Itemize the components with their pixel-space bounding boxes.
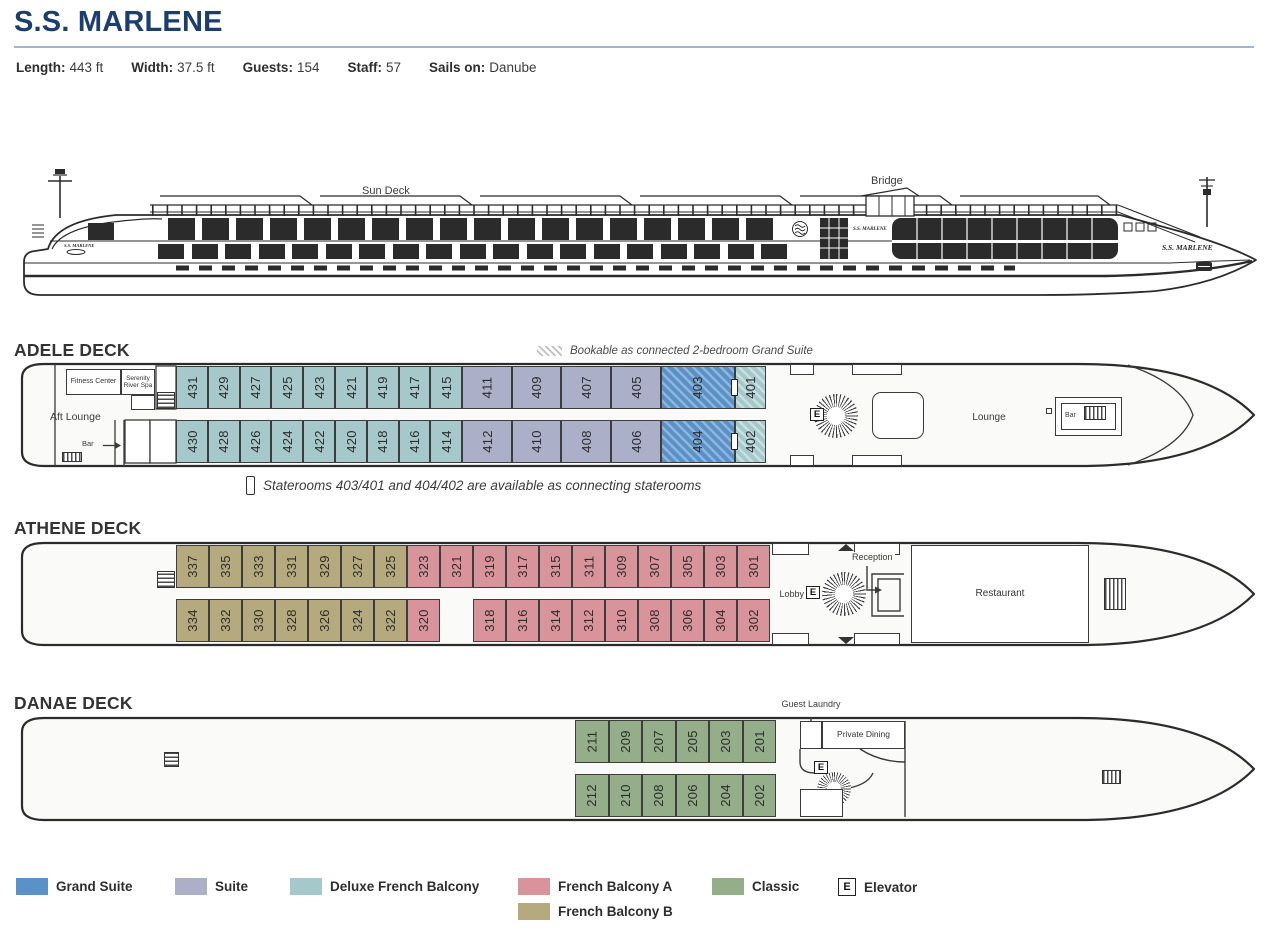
spiral-stairs-icon — [822, 572, 866, 616]
stateroom-327[interactable]: 327 — [341, 545, 374, 588]
stateroom-320[interactable]: 320 — [407, 599, 440, 642]
stateroom-430[interactable]: 430 — [176, 420, 208, 463]
stateroom-210[interactable]: 210 — [609, 774, 643, 817]
stateroom-329[interactable]: 329 — [308, 545, 341, 588]
legend-swatch-french-balcony-b — [518, 903, 550, 920]
stateroom-328[interactable]: 328 — [275, 599, 308, 642]
hatch-note: Bookable as connected 2-bedroom Grand Su… — [537, 345, 813, 357]
forward-window-band — [892, 218, 1118, 259]
page-title: S.S. MARLENE — [14, 6, 223, 39]
pillar — [1046, 408, 1052, 414]
wall-opening — [772, 633, 809, 645]
stateroom-324[interactable]: 324 — [341, 599, 374, 642]
deck-heading-adele: ADELE DECK — [14, 340, 130, 361]
stateroom-209[interactable]: 209 — [609, 720, 643, 763]
connecting-staterooms-note: Staterooms 403/401 and 404/402 are avail… — [246, 476, 701, 495]
ship-name-mid: S.S. MARLENE — [853, 227, 887, 232]
stateroom-307[interactable]: 307 — [638, 545, 671, 588]
stateroom-405[interactable]: 405 — [611, 366, 661, 409]
stateroom-333[interactable]: 333 — [242, 545, 275, 588]
stateroom-211[interactable]: 211 — [575, 720, 609, 763]
stateroom-207[interactable]: 207 — [642, 720, 676, 763]
stateroom-427[interactable]: 427 — [240, 366, 272, 409]
stateroom-301[interactable]: 301 — [737, 545, 770, 588]
stateroom-205[interactable]: 205 — [676, 720, 710, 763]
stateroom-416[interactable]: 416 — [399, 420, 431, 463]
wall-opening — [854, 633, 900, 645]
stateroom-411[interactable]: 411 — [462, 366, 512, 409]
elevator-symbol: E — [814, 761, 828, 774]
stateroom-312[interactable]: 312 — [572, 599, 605, 642]
stateroom-321[interactable]: 321 — [440, 545, 473, 588]
stateroom-310[interactable]: 310 — [605, 599, 638, 642]
bar-stairs-icon — [1084, 406, 1106, 420]
stateroom-408[interactable]: 408 — [561, 420, 611, 463]
stateroom-419[interactable]: 419 — [367, 366, 399, 409]
stateroom-428[interactable]: 428 — [208, 420, 240, 463]
stateroom-424[interactable]: 424 — [271, 420, 303, 463]
stateroom-332[interactable]: 332 — [209, 599, 242, 642]
stateroom-431[interactable]: 431 — [176, 366, 208, 409]
bridge-structure — [861, 188, 919, 216]
stateroom-206[interactable]: 206 — [676, 774, 710, 817]
aft-lower-stairs-icon — [62, 452, 82, 462]
stateroom-308[interactable]: 308 — [638, 599, 671, 642]
deck-plan-page: S.S. MARLENE Length:443 ft Width:37.5 ft… — [0, 0, 1268, 942]
forward-bar-label: Bar — [1065, 412, 1076, 419]
stateroom-319[interactable]: 319 — [473, 545, 506, 588]
restaurant-room: Restaurant — [911, 545, 1089, 643]
stateroom-412[interactable]: 412 — [462, 420, 512, 463]
stateroom-305[interactable]: 305 — [671, 545, 704, 588]
aft-lounge-label: Aft Lounge — [50, 411, 101, 423]
legend-swatch-deluxe-french-balcony — [290, 878, 322, 895]
stateroom-302[interactable]: 302 — [737, 599, 770, 642]
stateroom-330[interactable]: 330 — [242, 599, 275, 642]
stateroom-317[interactable]: 317 — [506, 545, 539, 588]
spa-annex-room — [131, 395, 155, 410]
stateroom-418[interactable]: 418 — [367, 420, 399, 463]
stair-room — [872, 392, 924, 439]
aft-stairs-icon — [157, 571, 175, 588]
deck-heading-athene: ATHENE DECK — [14, 518, 141, 539]
legend-item-suite: Suite — [175, 878, 248, 895]
stateroom-212[interactable]: 212 — [575, 774, 609, 817]
stateroom-309[interactable]: 309 — [605, 545, 638, 588]
stateroom-426[interactable]: 426 — [240, 420, 272, 463]
legend-item-french-balcony-a: French Balcony A — [518, 878, 672, 895]
legend-swatch-grand-suite — [16, 878, 48, 895]
stateroom-315[interactable]: 315 — [539, 545, 572, 588]
stern-window — [88, 223, 114, 240]
lobby-label: Lobby — [760, 589, 804, 599]
danae-rooms-bottom: 212210208206204202 — [14, 774, 1256, 817]
stateroom-326[interactable]: 326 — [308, 599, 341, 642]
connecting-door-symbol — [731, 433, 738, 450]
bow-mast — [1199, 177, 1215, 227]
stateroom-322[interactable]: 322 — [374, 599, 407, 642]
ship-name-bow: S.S. MARLENE — [1162, 243, 1213, 252]
stateroom-410[interactable]: 410 — [512, 420, 562, 463]
stateroom-314[interactable]: 314 — [539, 599, 572, 642]
deck-plan-adele: 4314294274254234214194174154114094074054… — [14, 362, 1256, 468]
stat-guests: Guests:154 — [243, 60, 320, 75]
private-dining-room: Private Dining — [822, 721, 905, 749]
deck-plan-athene: 3373353333313293273253233213193173153113… — [14, 541, 1256, 647]
stateroom-429[interactable]: 429 — [208, 366, 240, 409]
stateroom-420[interactable]: 420 — [335, 420, 367, 463]
guest-laundry-label: Guest Laundry — [754, 699, 868, 709]
stateroom-202[interactable]: 202 — [743, 774, 777, 817]
stateroom-404[interactable]: 404 — [661, 420, 735, 463]
legend-swatch-classic — [712, 878, 744, 895]
stateroom-423[interactable]: 423 — [303, 366, 335, 409]
connecting-door-glyph — [246, 476, 255, 495]
connecting-door-symbol — [731, 379, 738, 396]
deck-heading-danae: DANAE DECK — [14, 693, 133, 714]
legend-item-classic: Classic — [712, 878, 799, 895]
hatch-swatch — [537, 346, 562, 356]
stern-mast — [48, 169, 72, 218]
bow-stairs-icon — [1102, 770, 1121, 784]
sun-deck-label: Sun Deck — [362, 185, 410, 197]
serenity-river-spa-room: Serenity River Spa — [121, 369, 155, 395]
aft-stairs-icon — [157, 392, 175, 409]
stateroom-316[interactable]: 316 — [506, 599, 539, 642]
wall-opening — [790, 364, 814, 375]
stateroom-204[interactable]: 204 — [709, 774, 743, 817]
stateroom-414[interactable]: 414 — [430, 420, 462, 463]
aft-bar-label: Bar — [82, 439, 94, 448]
stat-staff: Staff:57 — [347, 60, 401, 75]
bow-stairs-icon — [1104, 578, 1126, 610]
sun-deck-railing — [150, 196, 1118, 212]
ship-name-stern: S.S. MARLENE — [64, 243, 94, 248]
stateroom-421[interactable]: 421 — [335, 366, 367, 409]
aft-stairs-icon — [164, 752, 179, 767]
stat-length: Length:443 ft — [16, 60, 103, 75]
stateroom-403[interactable]: 403 — [661, 366, 735, 409]
elevator-symbol: E — [810, 408, 824, 421]
stateroom-306[interactable]: 306 — [671, 599, 704, 642]
stateroom-407[interactable]: 407 — [561, 366, 611, 409]
wall-opening — [790, 455, 814, 466]
stateroom-417[interactable]: 417 — [399, 366, 431, 409]
legend-swatch-suite — [175, 878, 207, 895]
reception-label: Reception — [850, 552, 895, 562]
ship-profile-drawing: S.S. MARLENE — [10, 163, 1258, 305]
bow-emblem — [1196, 262, 1212, 271]
stateroom-415[interactable]: 415 — [430, 366, 462, 409]
mid-stair-block — [820, 218, 848, 259]
lounge-label: Lounge — [949, 412, 1029, 423]
stateroom-303[interactable]: 303 — [704, 545, 737, 588]
stateroom-422[interactable]: 422 — [303, 420, 335, 463]
stateroom-311[interactable]: 311 — [572, 545, 605, 588]
stateroom-325[interactable]: 325 — [374, 545, 407, 588]
stateroom-323[interactable]: 323 — [407, 545, 440, 588]
stateroom-425[interactable]: 425 — [271, 366, 303, 409]
legend-elevator-symbol: E — [838, 878, 856, 896]
stat-width: Width:37.5 ft — [131, 60, 214, 75]
legend-item-elevator: E Elevator — [838, 878, 917, 896]
wall-opening — [772, 543, 809, 555]
stateroom-402[interactable]: 402 — [735, 420, 766, 463]
wall-opening — [852, 364, 902, 375]
guest-laundry-room — [800, 721, 822, 749]
legend-item-grand-suite: Grand Suite — [16, 878, 133, 895]
stat-sails-on: Sails on:Danube — [429, 60, 537, 75]
fitness-center-room: Fitness Center — [66, 369, 121, 395]
legend-item-deluxe-french-balcony: Deluxe French Balcony — [290, 878, 479, 895]
stateroom-331[interactable]: 331 — [275, 545, 308, 588]
bridge-label: Bridge — [871, 175, 903, 187]
stateroom-201[interactable]: 201 — [743, 720, 777, 763]
stateroom-304[interactable]: 304 — [704, 599, 737, 642]
brand-logo — [793, 222, 808, 237]
elevator-symbol: E — [806, 586, 820, 599]
stateroom-203[interactable]: 203 — [709, 720, 743, 763]
ship-stats: Length:443 ft Width:37.5 ft Guests:154 S… — [16, 60, 537, 75]
deck-plan-danae: 211209207205203201 212210208206204202 Gu… — [14, 716, 1256, 822]
stateroom-406[interactable]: 406 — [611, 420, 661, 463]
stateroom-335[interactable]: 335 — [209, 545, 242, 588]
legend-swatch-french-balcony-a — [518, 878, 550, 895]
legend-item-french-balcony-b: French Balcony B — [518, 903, 673, 920]
legend: Grand Suite Suite Deluxe French Balcony … — [0, 874, 1268, 934]
stateroom-318[interactable]: 318 — [473, 599, 506, 642]
title-rule — [14, 46, 1254, 48]
stateroom-337[interactable]: 337 — [176, 545, 209, 588]
stateroom-334[interactable]: 334 — [176, 599, 209, 642]
service-room — [800, 789, 843, 817]
stateroom-208[interactable]: 208 — [642, 774, 676, 817]
wall-opening — [852, 455, 902, 466]
stateroom-409[interactable]: 409 — [512, 366, 562, 409]
stateroom-401[interactable]: 401 — [735, 366, 766, 409]
ship-profile-illustration: Sun Deck Bridge S.S. MARLENE — [10, 163, 1258, 305]
danae-rooms-top: 211209207205203201 — [14, 720, 1256, 763]
